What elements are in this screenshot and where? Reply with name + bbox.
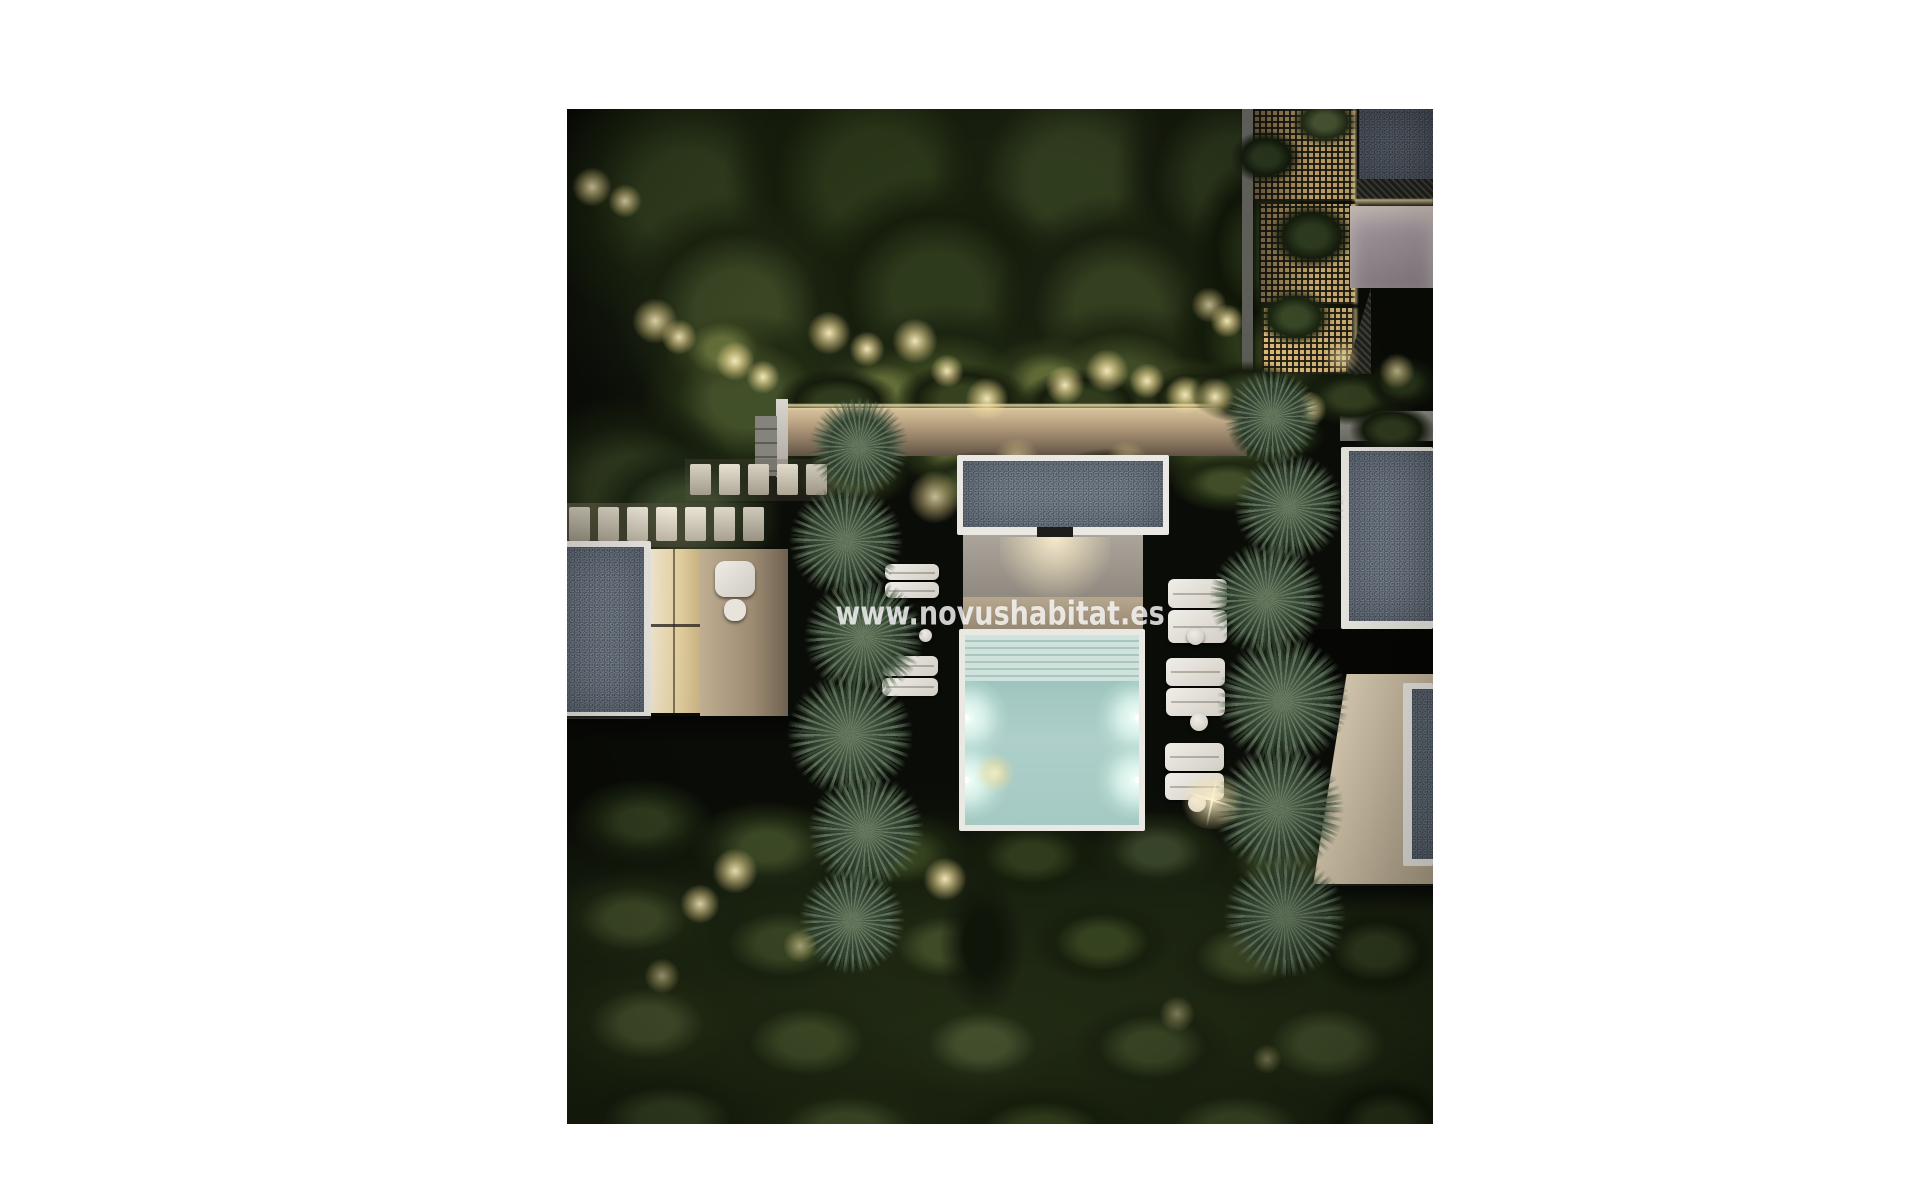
garden-light-glow: [965, 377, 1009, 421]
terrace-sofa: [715, 561, 755, 597]
garden-light-glow: [572, 167, 612, 207]
pool-light-dot: [1135, 715, 1139, 721]
watermark-url-text: www.novushabitat.es: [835, 594, 1164, 633]
stepping-stone: [777, 464, 798, 495]
climbing-plant: [1229, 129, 1303, 185]
terrace-pouf: [724, 599, 746, 621]
aerial-render-photo: www.novushabitat.es: [567, 109, 1433, 1124]
garden-light-glow: [661, 319, 697, 355]
stepping-stone: [598, 507, 619, 541]
stepping-stone: [743, 507, 764, 541]
left-villa-roof: [567, 547, 644, 712]
climbing-plant: [1255, 287, 1335, 347]
stepping-stone: [685, 507, 706, 541]
garden-light-glow: [1085, 349, 1129, 393]
pergola-roof: [1357, 109, 1433, 179]
garden-light-glow: [1159, 996, 1195, 1032]
garden-light-glow: [807, 311, 851, 355]
garden-light-glow: [923, 857, 967, 901]
cabana-roof: [963, 461, 1163, 527]
garden-light-glow: [644, 958, 680, 994]
side-table: [1187, 628, 1204, 645]
garden-light-glow: [1191, 287, 1227, 323]
garden-light-glow: [908, 470, 962, 524]
garden-light-glow: [849, 331, 885, 367]
left-villa-glass-glow: [651, 549, 700, 713]
side-table: [1190, 713, 1208, 731]
wall-sconce: [1037, 527, 1073, 537]
pool-basin: [965, 635, 1139, 825]
page: { "photo": { "kind": "night aerial 3D ar…: [0, 0, 1920, 1200]
right-villa-roof: [1349, 451, 1433, 621]
garden-light-glow: [783, 929, 817, 963]
stepping-stone: [627, 507, 648, 541]
stepping-stone: [690, 464, 711, 495]
garden-light-glow: [1252, 1044, 1282, 1074]
lit-courtyard-wall: [1350, 206, 1433, 288]
skylight-panel: [1412, 689, 1433, 859]
garden-light-glow: [746, 360, 780, 394]
garden-light-glow: [975, 753, 1015, 793]
pool-light-dot: [1135, 777, 1139, 783]
louver-band: [1357, 179, 1433, 199]
climbing-plant: [1267, 201, 1357, 271]
wall-light-wash: [1000, 537, 1110, 597]
garden-light-glow: [1379, 353, 1415, 389]
garden-light-glow: [1045, 365, 1085, 405]
stepping-stone: [748, 464, 769, 495]
stepping-stone: [714, 507, 735, 541]
garden-light-glow: [892, 318, 938, 364]
garden-light-glow: [608, 184, 642, 218]
pool-steps: [965, 635, 1139, 681]
sun-lounger: [1166, 658, 1225, 686]
stepping-stone: [569, 507, 590, 541]
stepping-stone: [719, 464, 740, 495]
roofline-shadow: [567, 716, 799, 744]
stepping-stone: [656, 507, 677, 541]
garden-light-glow: [680, 884, 720, 924]
bush-blob: [1027, 897, 1177, 987]
glass-mullion: [673, 549, 675, 713]
bush-blob: [717, 989, 897, 1094]
garden-light-glow: [712, 848, 758, 894]
garden-light-glow: [1129, 363, 1165, 399]
garden-light-glow: [930, 354, 964, 388]
glass-mullion: [651, 624, 700, 627]
sun-lounger: [1165, 743, 1224, 771]
